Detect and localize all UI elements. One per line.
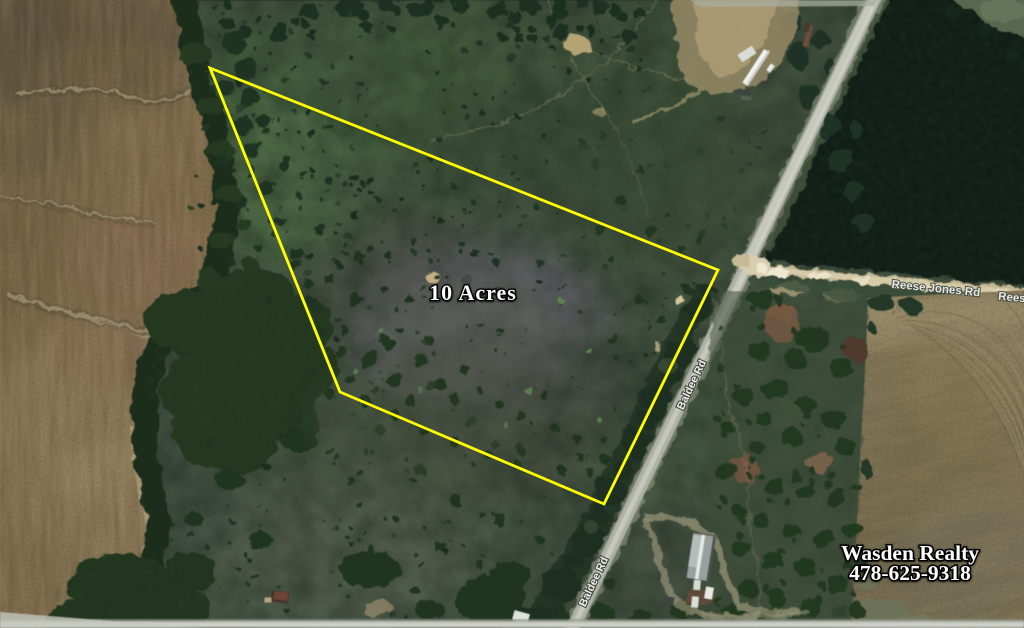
svg-text:10 Acres: 10 Acres bbox=[429, 280, 517, 305]
svg-text:478-625-9318: 478-625-9318 bbox=[849, 561, 971, 585]
